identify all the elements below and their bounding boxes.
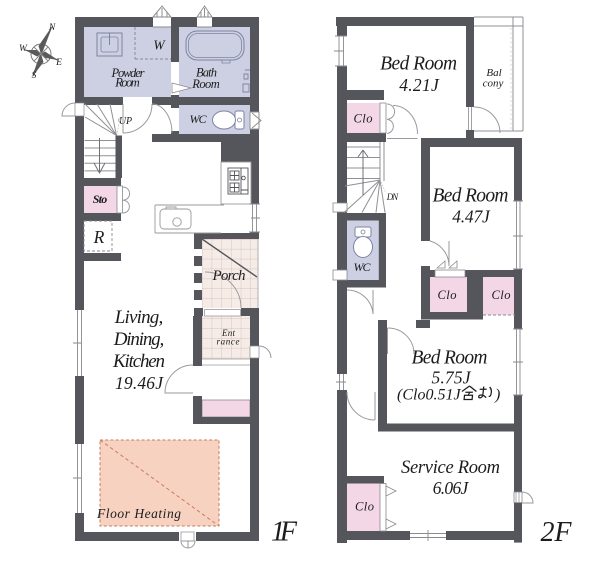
svg-text:Floor Heating: Floor Heating [96, 506, 181, 521]
svg-text:UP: UP [119, 116, 132, 127]
svg-text:2F: 2F [541, 517, 573, 548]
svg-text:rance: rance [217, 337, 240, 347]
svg-text:N: N [48, 23, 56, 33]
svg-text:Sto: Sto [93, 192, 108, 206]
svg-text:4.47J: 4.47J [452, 207, 491, 227]
svg-text:R: R [93, 227, 105, 247]
svg-text:DN: DN [386, 192, 399, 202]
svg-text:Bed Room: Bed Room [433, 185, 509, 206]
svg-text:5.75J: 5.75J [432, 368, 472, 388]
svg-text:W: W [153, 38, 166, 53]
svg-text:Kitchen: Kitchen [112, 351, 165, 372]
svg-text:Living,: Living, [114, 307, 164, 328]
svg-text:Bed Room: Bed Room [380, 54, 457, 75]
svg-text:Room: Room [114, 76, 140, 90]
svg-text:19.46J: 19.46J [115, 373, 164, 393]
svg-text:(Clo0.51J: (Clo0.51J [397, 387, 461, 404]
svg-text:W: W [19, 44, 28, 54]
svg-text:cony: cony [483, 78, 504, 90]
svg-text:4.21J: 4.21J [399, 75, 440, 95]
svg-text:Bed Room: Bed Room [412, 348, 488, 369]
svg-text:Clo: Clo [355, 500, 374, 514]
svg-text:WC: WC [354, 260, 372, 274]
svg-text:1F: 1F [271, 517, 298, 548]
svg-text:Service Room: Service Room [401, 458, 500, 478]
svg-text:S: S [32, 71, 37, 81]
svg-text:): ) [494, 387, 500, 404]
svg-text:Room: Room [191, 77, 220, 91]
svg-text:Clo: Clo [438, 288, 457, 302]
svg-text:Dining,: Dining, [113, 329, 165, 350]
svg-text:Porch: Porch [212, 268, 246, 284]
svg-text:Clo: Clo [354, 112, 373, 126]
svg-text:6.06J: 6.06J [433, 478, 470, 498]
svg-text:Clo: Clo [492, 288, 511, 302]
svg-text:E: E [55, 58, 62, 68]
svg-text:WC: WC [190, 112, 208, 126]
